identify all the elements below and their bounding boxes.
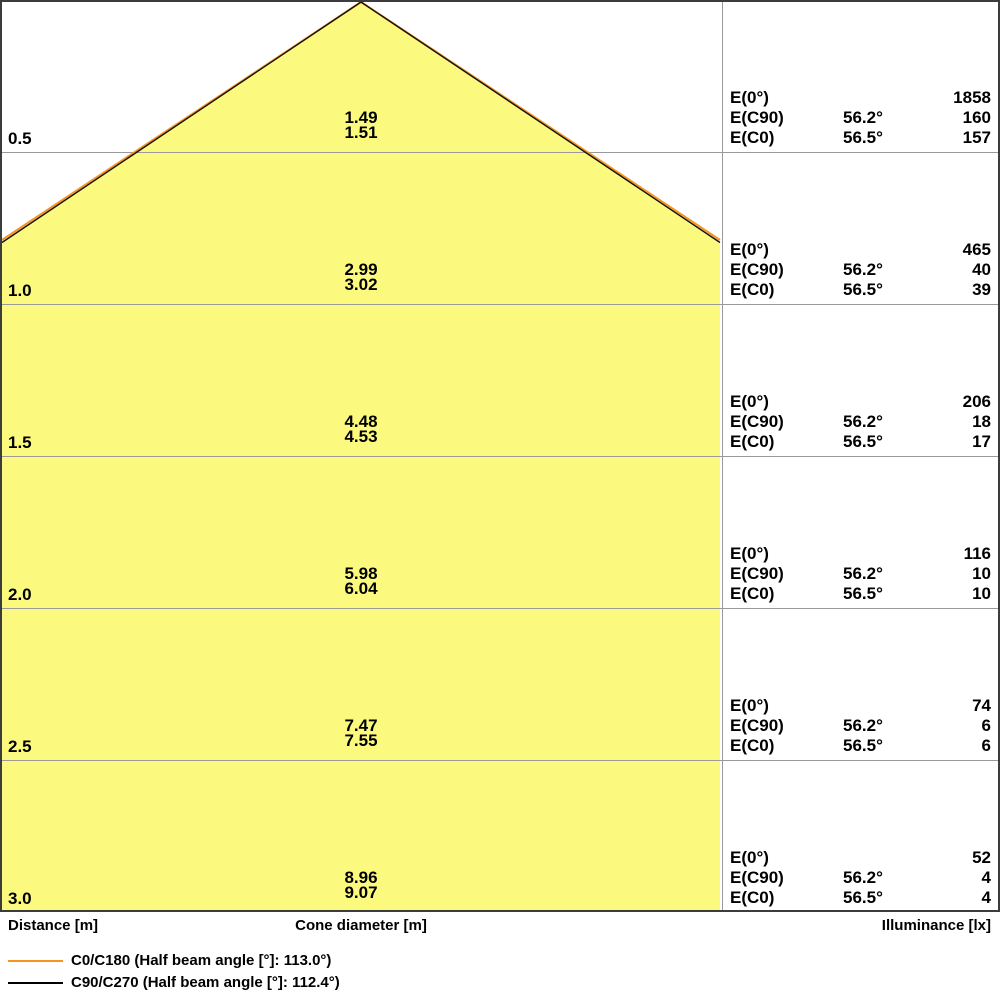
e0-label: E(0°) <box>730 848 843 868</box>
c90-line-swatch <box>8 982 63 984</box>
ec0-angle: 56.5° <box>843 280 907 300</box>
ec0-value: 4 <box>982 888 991 908</box>
ec90-label: E(C90) <box>730 108 843 128</box>
ec0-row: E(C0) 56.5° 39 <box>730 280 991 300</box>
legend-label-c0: C0/C180 (Half beam angle [°]: 113.0°) <box>71 953 331 969</box>
e0-row: E(0°) 1858 <box>730 88 991 108</box>
illuminance-block: E(0°) 465 E(C90) 56.2° 40 E(C0) 56.5° 39 <box>730 240 991 300</box>
ec0-label: E(C0) <box>730 280 843 300</box>
e0-label: E(0°) <box>730 392 843 412</box>
ec0-row: E(C0) 56.5° 157 <box>730 128 991 148</box>
e0-label: E(0°) <box>730 696 843 716</box>
ec90-value: 18 <box>972 412 991 432</box>
ec0-value: 39 <box>972 280 991 300</box>
ec90-row: E(C90) 56.2° 6 <box>730 716 991 736</box>
ec0-label: E(C0) <box>730 584 843 604</box>
diameter-c0-value: 3.02 <box>0 277 722 292</box>
ec90-row: E(C90) 56.2° 10 <box>730 564 991 584</box>
ec90-label: E(C90) <box>730 564 843 584</box>
ec0-row: E(C0) 56.5° 10 <box>730 584 991 604</box>
ec90-angle: 56.2° <box>843 868 907 888</box>
ec0-label: E(C0) <box>730 736 843 756</box>
diameter-c0-value: 9.07 <box>0 885 722 900</box>
ec90-angle: 56.2° <box>843 260 907 280</box>
e0-angle <box>843 392 907 412</box>
e0-angle <box>843 696 907 716</box>
legend-item-c0-c180: C0/C180 (Half beam angle [°]: 113.0°) <box>8 950 340 972</box>
illuminance-block: E(0°) 116 E(C90) 56.2° 10 E(C0) 56.5° 10 <box>730 544 991 604</box>
e0-value: 1858 <box>953 88 991 108</box>
e0-row: E(0°) 465 <box>730 240 991 260</box>
ec0-row: E(C0) 56.5° 6 <box>730 736 991 756</box>
e0-value: 52 <box>972 848 991 868</box>
e0-angle <box>843 240 907 260</box>
e0-value: 206 <box>963 392 991 412</box>
cone-diameter-values: 2.99 3.02 <box>0 262 722 292</box>
cone-diameter-values: 5.98 6.04 <box>0 566 722 596</box>
ec90-angle: 56.2° <box>843 108 907 128</box>
cone-diameter-values: 8.96 9.07 <box>0 870 722 900</box>
ec0-value: 157 <box>963 128 991 148</box>
cone-diameter-values: 4.48 4.53 <box>0 414 722 444</box>
e0-label: E(0°) <box>730 544 843 564</box>
e0-row: E(0°) 74 <box>730 696 991 716</box>
e0-label: E(0°) <box>730 240 843 260</box>
e0-value: 116 <box>964 544 991 564</box>
light-cone-diagram: 0.5 1.49 1.51 E(0°) 1858 E(C90) 56.2° 16… <box>0 0 1000 1000</box>
cone-diameter-values: 1.49 1.51 <box>0 110 722 140</box>
e0-value: 74 <box>972 696 991 716</box>
ec90-angle: 56.2° <box>843 564 907 584</box>
ec90-angle: 56.2° <box>843 716 907 736</box>
ec0-angle: 56.5° <box>843 128 907 148</box>
ec0-value: 17 <box>972 432 991 452</box>
legend-label-c90: C90/C270 (Half beam angle [°]: 112.4°) <box>71 975 340 991</box>
ec90-angle: 56.2° <box>843 412 907 432</box>
e0-label: E(0°) <box>730 88 843 108</box>
illuminance-axis-label: Illuminance [lx] <box>882 918 991 934</box>
ec0-row: E(C0) 56.5° 4 <box>730 888 991 908</box>
e0-angle <box>843 88 907 108</box>
ec0-value: 10 <box>972 584 991 604</box>
ec90-row: E(C90) 56.2° 40 <box>730 260 991 280</box>
ec0-angle: 56.5° <box>843 888 907 908</box>
ec90-label: E(C90) <box>730 412 843 432</box>
ec0-value: 6 <box>982 736 991 756</box>
illuminance-block: E(0°) 1858 E(C90) 56.2° 160 E(C0) 56.5° … <box>730 88 991 148</box>
illuminance-block: E(0°) 206 E(C90) 56.2° 18 E(C0) 56.5° 17 <box>730 392 991 452</box>
ec90-row: E(C90) 56.2° 18 <box>730 412 991 432</box>
e0-row: E(0°) 116 <box>730 544 991 564</box>
ec0-label: E(C0) <box>730 888 843 908</box>
ec0-row: E(C0) 56.5° 17 <box>730 432 991 452</box>
e0-row: E(0°) 52 <box>730 848 991 868</box>
cone-diameter-axis-label: Cone diameter [m] <box>0 918 722 934</box>
illuminance-block: E(0°) 74 E(C90) 56.2° 6 E(C0) 56.5° 6 <box>730 696 991 756</box>
c0-line-swatch <box>8 960 63 962</box>
ec0-angle: 56.5° <box>843 584 907 604</box>
ec90-value: 40 <box>972 260 991 280</box>
ec90-value: 160 <box>963 108 991 128</box>
cone-diameter-values: 7.47 7.55 <box>0 718 722 748</box>
ec90-value: 6 <box>982 716 991 736</box>
illuminance-block: E(0°) 52 E(C90) 56.2° 4 E(C0) 56.5° 4 <box>730 848 991 908</box>
ec0-label: E(C0) <box>730 432 843 452</box>
ec90-row: E(C90) 56.2° 160 <box>730 108 991 128</box>
ec90-row: E(C90) 56.2° 4 <box>730 868 991 888</box>
ec90-value: 4 <box>982 868 991 888</box>
legend-item-c90-c270: C90/C270 (Half beam angle [°]: 112.4°) <box>8 972 340 994</box>
diameter-c0-value: 1.51 <box>0 125 722 140</box>
ec90-label: E(C90) <box>730 868 843 888</box>
e0-angle <box>843 848 907 868</box>
ec0-label: E(C0) <box>730 128 843 148</box>
diameter-c0-value: 6.04 <box>0 581 722 596</box>
ec90-value: 10 <box>972 564 991 584</box>
ec0-angle: 56.5° <box>843 736 907 756</box>
diameter-c0-value: 7.55 <box>0 733 722 748</box>
e0-angle <box>843 544 907 564</box>
e0-value: 465 <box>963 240 991 260</box>
ec0-angle: 56.5° <box>843 432 907 452</box>
legend: C0/C180 (Half beam angle [°]: 113.0°) C9… <box>8 950 340 994</box>
ec90-label: E(C90) <box>730 260 843 280</box>
ec90-label: E(C90) <box>730 716 843 736</box>
diameter-c0-value: 4.53 <box>0 429 722 444</box>
e0-row: E(0°) 206 <box>730 392 991 412</box>
